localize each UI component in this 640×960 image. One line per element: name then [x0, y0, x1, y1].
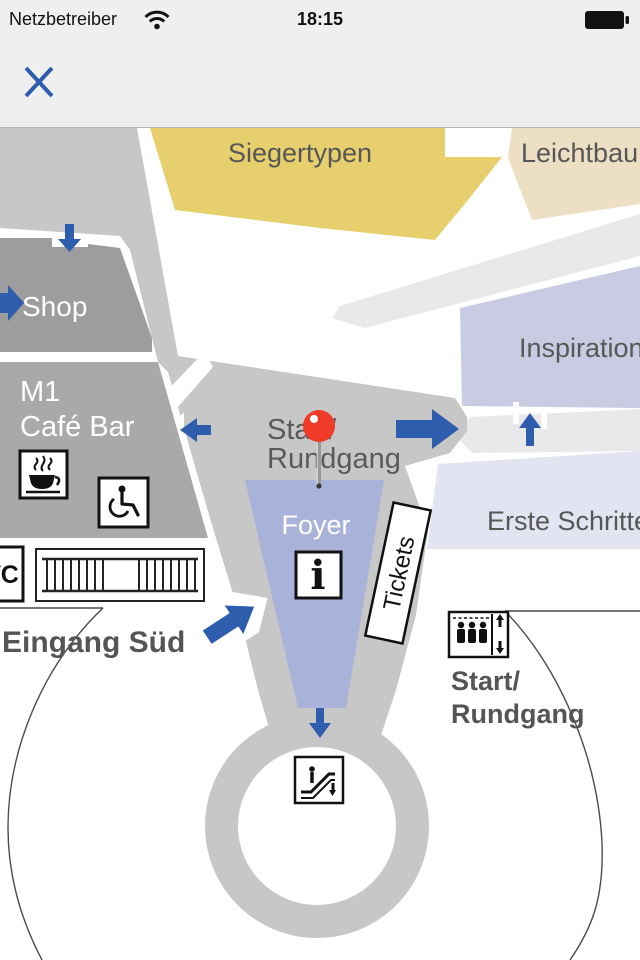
floorplan-map[interactable]: Siegertypen Leichtbau Inspiration Erste …: [0, 128, 640, 960]
walkway-east: [455, 409, 640, 453]
label-siegertypen: Siegertypen: [228, 138, 372, 168]
clock: 18:15: [0, 9, 640, 30]
label-inspiration: Inspiration: [519, 333, 640, 363]
app-window: Netzbetreiber 18:15: [0, 0, 640, 960]
info-icon: i: [296, 552, 341, 599]
escalator-icon: [295, 757, 343, 803]
door-tick: [541, 407, 547, 429]
battery-icon: [584, 10, 630, 30]
label-wc: WC: [0, 561, 19, 589]
label-eingang-sued: Eingang Süd: [2, 626, 185, 659]
wc-sign: WC: [0, 547, 23, 601]
coffee-icon: [20, 451, 67, 498]
label-start-right-2: Rundgang: [451, 699, 584, 729]
label-leichtbau: Leichtbau: [521, 138, 638, 168]
door-tick: [513, 402, 519, 424]
wheelchair-icon: [99, 478, 148, 527]
label-cafe-2: Café Bar: [20, 411, 135, 443]
svg-text:i: i: [310, 552, 325, 599]
toolbar: [0, 40, 640, 128]
close-icon[interactable]: [22, 64, 56, 100]
status-bar: Netzbetreiber 18:15: [0, 0, 640, 40]
label-start-center-2: Rundgang: [267, 443, 401, 475]
label-cafe-1: M1: [20, 376, 60, 408]
stairs-icon: [36, 549, 204, 601]
label-foyer: Foyer: [281, 510, 350, 540]
label-shop: Shop: [22, 291, 87, 322]
floorplan-svg: Siegertypen Leichtbau Inspiration Erste …: [0, 128, 640, 960]
elevator-icon: [449, 612, 508, 657]
label-start-right-1: Start/: [451, 666, 521, 696]
label-erste-schritte: Erste Schritte: [487, 506, 640, 536]
